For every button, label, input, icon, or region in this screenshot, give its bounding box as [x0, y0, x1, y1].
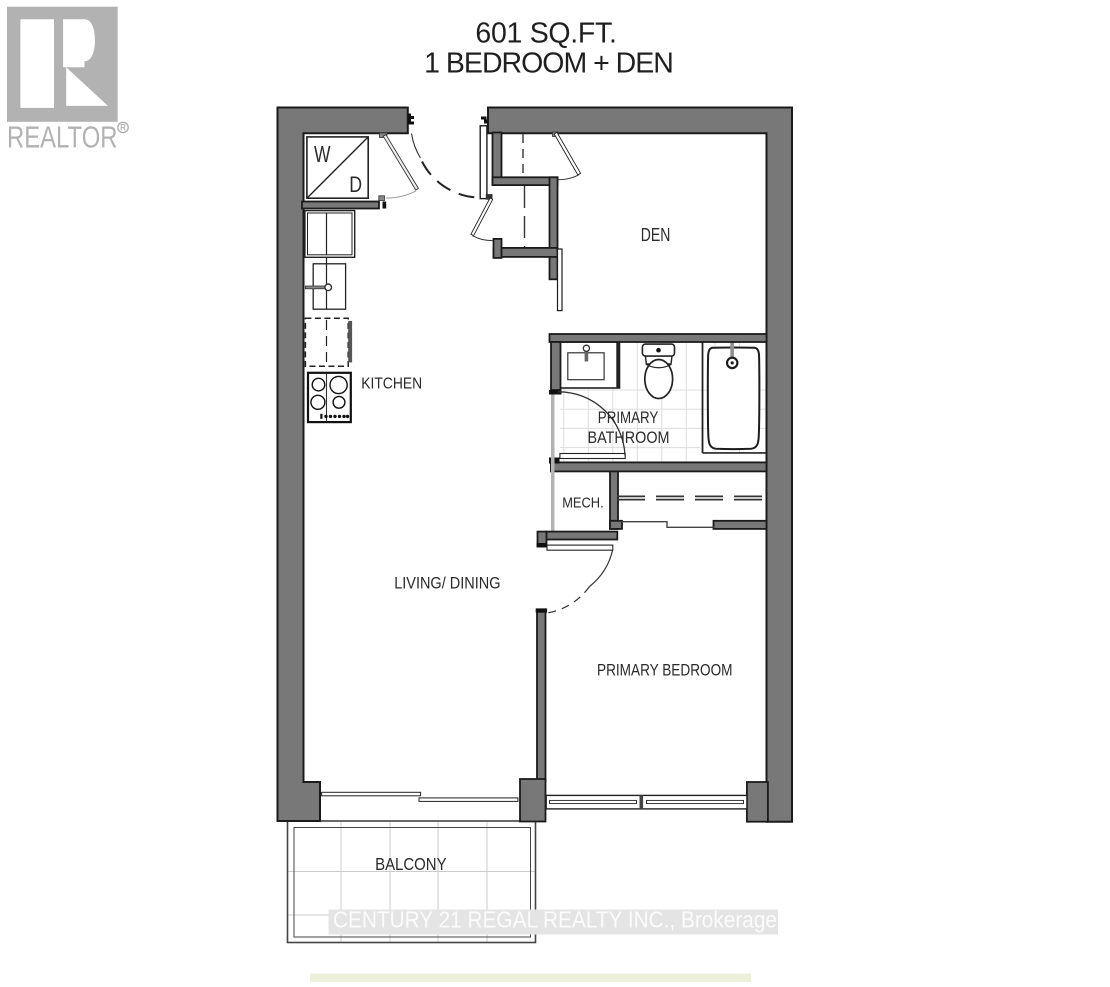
svg-text:1 BEDROOM + DEN: 1 BEDROOM + DEN [424, 48, 673, 80]
svg-text:REALTOR: REALTOR [7, 120, 118, 155]
svg-text:PRIMARY BEDROOM: PRIMARY BEDROOM [597, 660, 733, 679]
svg-text:BATHROOM: BATHROOM [588, 429, 670, 447]
svg-text:BALCONY: BALCONY [375, 854, 447, 874]
svg-text:KITCHEN: KITCHEN [361, 376, 422, 393]
svg-text:D: D [349, 172, 362, 197]
svg-text:MECH.: MECH. [562, 495, 604, 511]
svg-text:CENTURY 21 REGAL REALTY INC.,: CENTURY 21 REGAL REALTY INC., Brokerage [333, 907, 777, 933]
svg-text:601 SQ.FT.: 601 SQ.FT. [475, 17, 616, 49]
svg-text:LIVING/ DINING: LIVING/ DINING [394, 574, 500, 593]
svg-text:W: W [314, 141, 331, 167]
svg-text:PRIMARY: PRIMARY [598, 409, 659, 427]
svg-text:DEN: DEN [641, 225, 671, 245]
